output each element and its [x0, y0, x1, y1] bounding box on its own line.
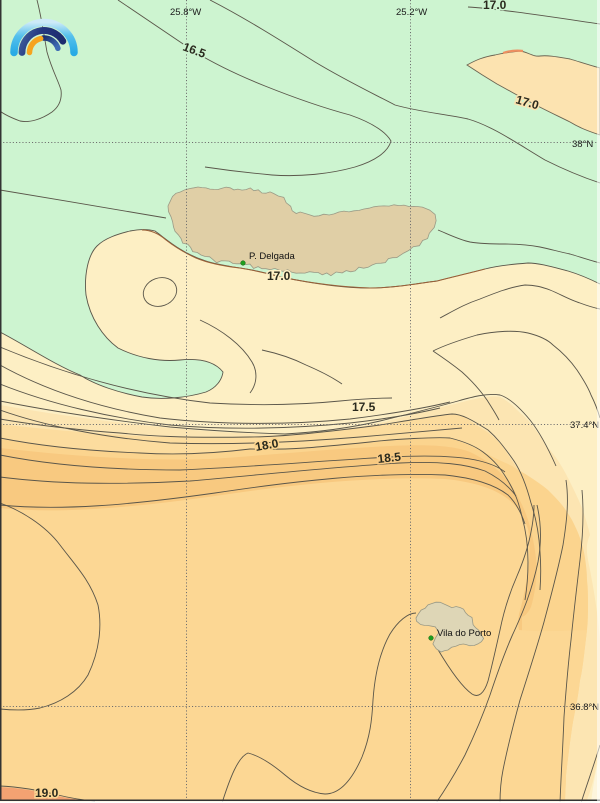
svg-text:37.4°N: 37.4°N [570, 420, 599, 431]
svg-text:17.5: 17.5 [352, 400, 376, 414]
svg-text:38°N: 38°N [572, 139, 593, 150]
svg-text:36.8°N: 36.8°N [570, 702, 599, 713]
svg-text:P. Delgada: P. Delgada [249, 251, 295, 262]
svg-text:17.0: 17.0 [267, 269, 291, 283]
svg-text:25.2°W: 25.2°W [396, 7, 427, 18]
svg-text:17.0: 17.0 [483, 0, 507, 12]
svg-text:19.0: 19.0 [35, 786, 59, 800]
svg-text:18.5: 18.5 [377, 450, 402, 466]
svg-text:25.8°W: 25.8°W [170, 7, 201, 18]
svg-text:Vila do Porto: Vila do Porto [437, 628, 491, 639]
